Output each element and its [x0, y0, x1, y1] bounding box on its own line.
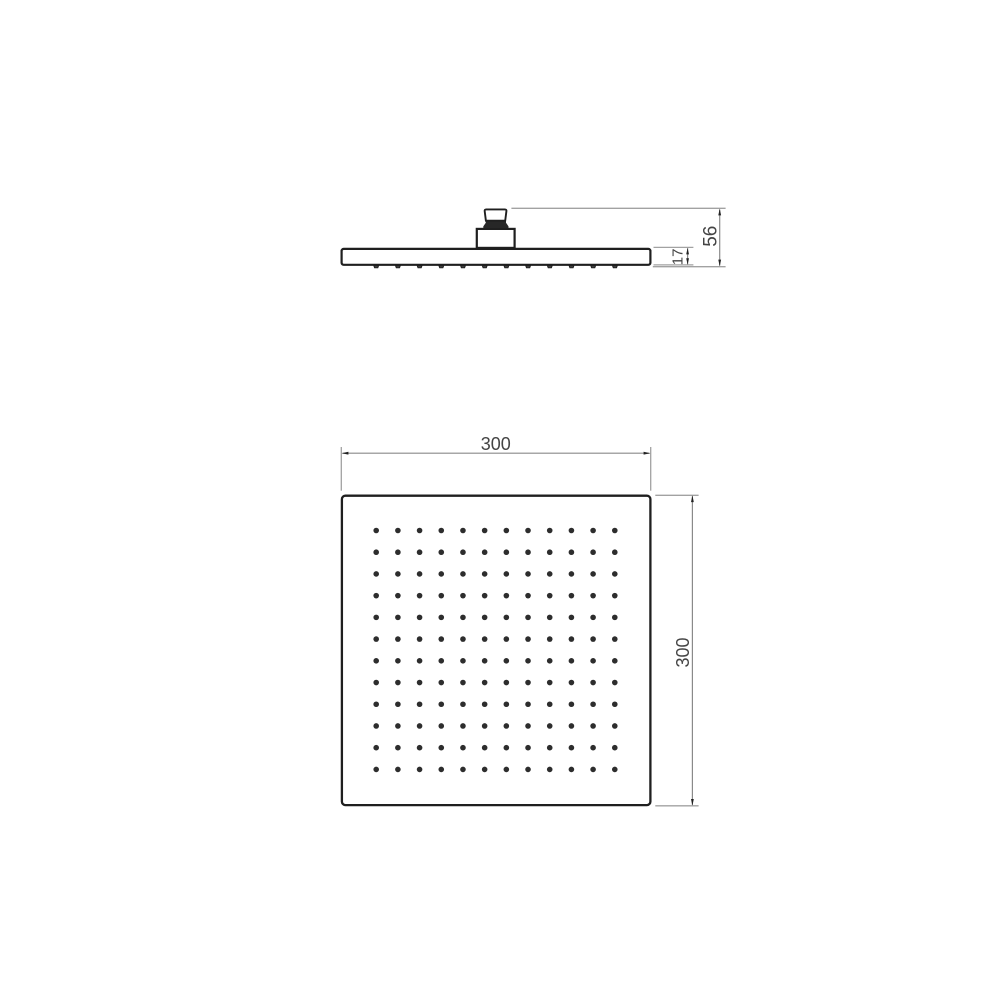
- svg-text:300: 300: [481, 434, 511, 454]
- svg-text:17: 17: [669, 249, 686, 266]
- svg-text:56: 56: [700, 226, 721, 247]
- svg-text:300: 300: [673, 637, 693, 667]
